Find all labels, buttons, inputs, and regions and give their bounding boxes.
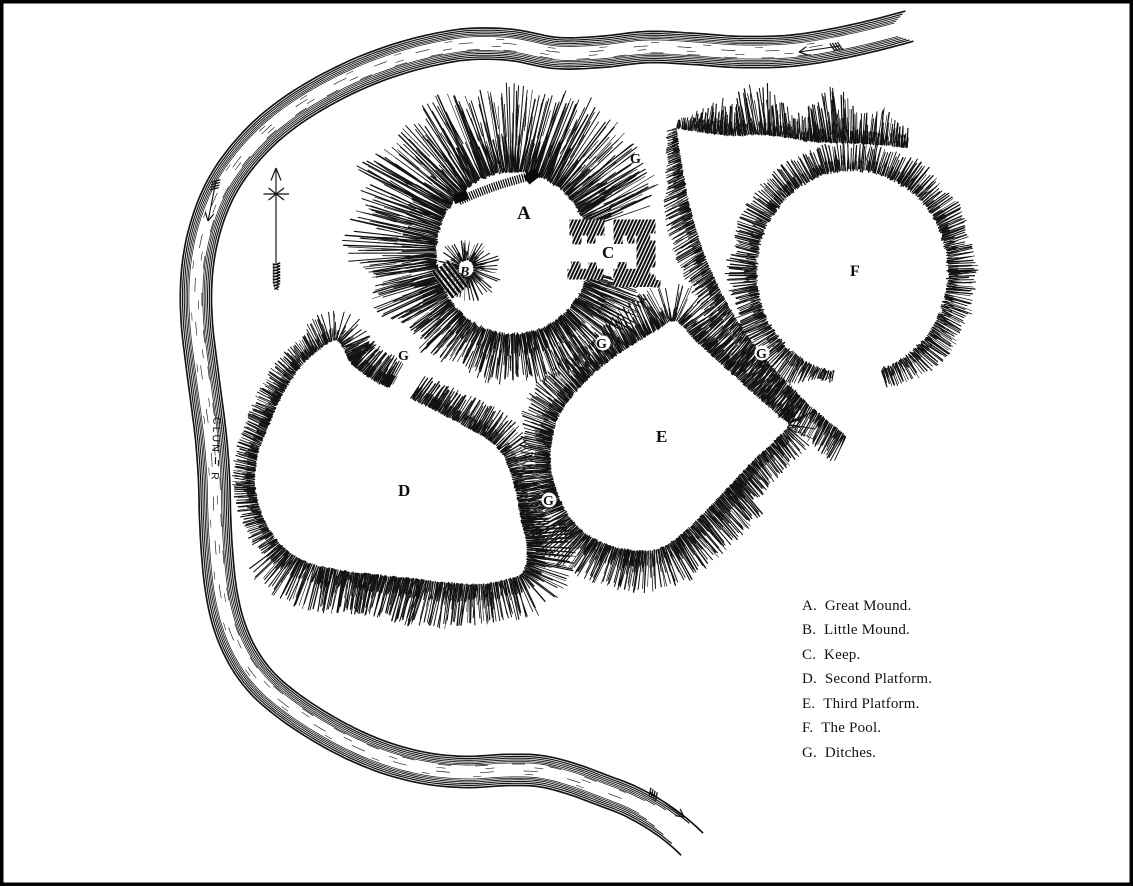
svg-text:CLUN: CLUN [209,417,222,454]
svg-text:A. Great Mound.: A. Great Mound. [802,598,911,614]
svg-text:G: G [596,337,607,352]
svg-text:C: C [602,243,614,262]
svg-text:D. Second Platform.: D. Second Platform. [802,671,932,687]
svg-text:F: F [850,263,860,280]
svg-text:F. The Pool.: F. The Pool. [802,720,881,736]
svg-text:B. Little Mound.: B. Little Mound. [802,622,910,638]
svg-text:G. Ditches.: G. Ditches. [802,745,876,761]
svg-text:C. Keep.: C. Keep. [802,647,860,663]
svg-text:G: G [756,347,767,362]
svg-text:R: R [208,472,220,480]
svg-text:B: B [459,265,469,280]
svg-text:D: D [398,481,410,500]
svg-text:G: G [543,494,554,509]
svg-text:E. Third Platform.: E. Third Platform. [802,696,920,712]
svg-text:G: G [398,349,409,364]
svg-text:G: G [630,152,641,167]
svg-text:A: A [517,203,531,224]
svg-text:E: E [656,427,667,446]
